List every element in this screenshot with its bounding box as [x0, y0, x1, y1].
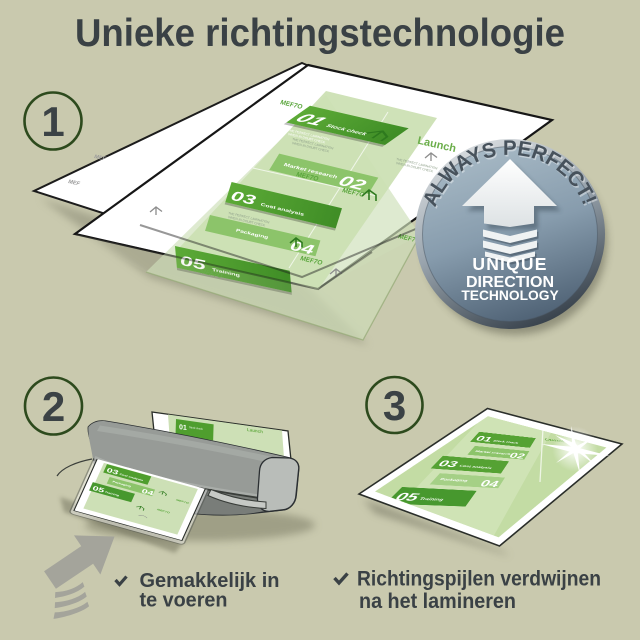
- svg-text:TECHNOLOGY: TECHNOLOGY: [461, 288, 558, 303]
- svg-text:UNIQUE: UNIQUE: [472, 254, 547, 274]
